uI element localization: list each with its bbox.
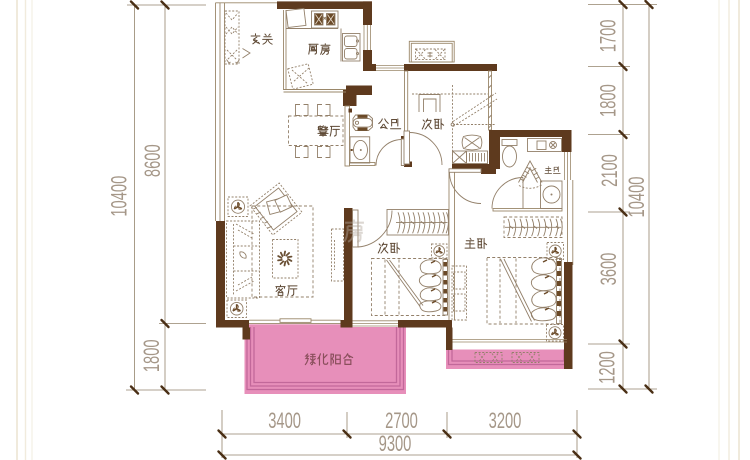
svg-text:3400: 3400 — [268, 408, 301, 433]
svg-text:2700: 2700 — [385, 408, 418, 433]
svg-text:1200: 1200 — [595, 351, 620, 384]
svg-text:2100: 2100 — [597, 154, 622, 187]
svg-text:1800: 1800 — [596, 84, 621, 117]
svg-text:8600: 8600 — [140, 144, 165, 177]
svg-text:9300: 9300 — [379, 431, 412, 456]
svg-text:1700: 1700 — [596, 20, 621, 53]
svg-text:1800: 1800 — [139, 339, 164, 372]
svg-text:10400: 10400 — [106, 176, 131, 217]
svg-text:3600: 3600 — [596, 253, 621, 286]
svg-text:3200: 3200 — [489, 408, 522, 433]
svg-text:10400: 10400 — [624, 177, 649, 218]
